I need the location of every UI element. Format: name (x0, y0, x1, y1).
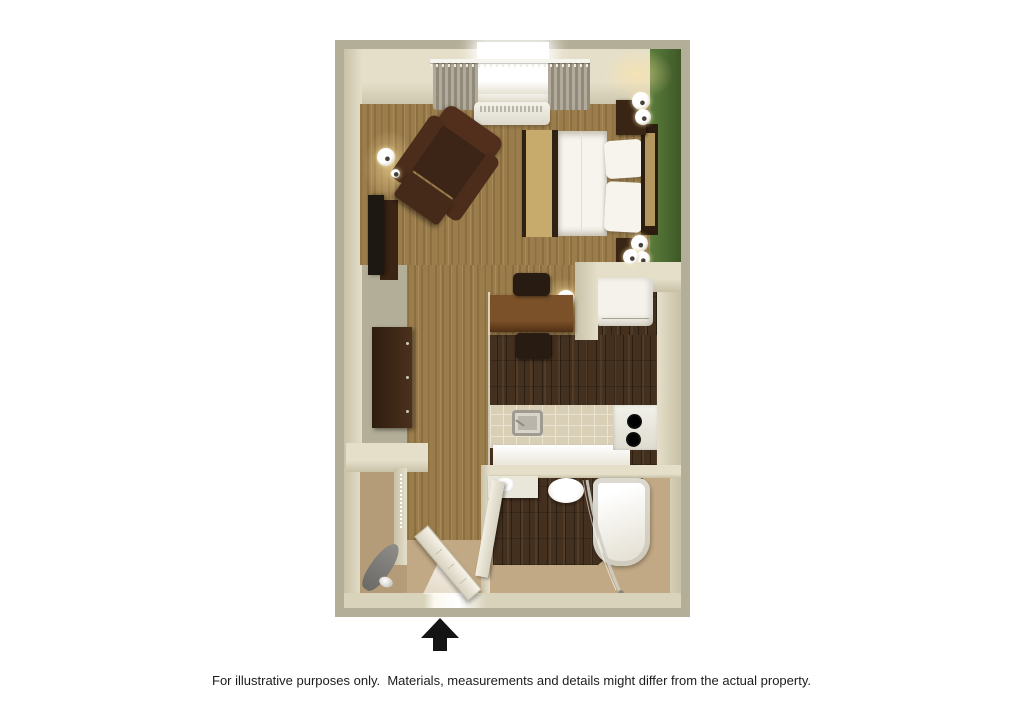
kitchen-wall (575, 262, 598, 340)
chair (515, 333, 551, 359)
closet-shelf (346, 443, 428, 472)
bottom-wall-outer (335, 608, 690, 617)
dresser (372, 327, 412, 428)
refrigerator-handle (602, 318, 649, 319)
entrance-arrow-icon (433, 638, 447, 651)
bed-runner (522, 130, 558, 237)
curtain-rings (430, 64, 590, 67)
bottom-wall (344, 593, 681, 608)
headboard-panel (645, 133, 655, 226)
carpet-floor-corridor (407, 335, 488, 540)
burner (627, 414, 642, 429)
pillow (604, 139, 645, 180)
disclaimer-caption: For illustrative purposes only. Material… (0, 673, 1023, 688)
floor-plan-page: For illustrative purposes only. Material… (0, 0, 1023, 716)
drawer-handle (406, 342, 409, 345)
wall-lamp-icon (623, 249, 639, 265)
floor-plan (335, 40, 690, 617)
ac-vents (480, 106, 544, 112)
table-lamp-icon (632, 92, 650, 110)
drawer-handle (406, 410, 409, 413)
wall-sconce-icon (377, 148, 395, 166)
drawer-handle (406, 376, 409, 379)
chair (513, 273, 550, 296)
entrance-arrow-icon (421, 618, 459, 638)
air-conditioner (474, 102, 550, 125)
kitchen-sink (512, 410, 543, 436)
curtain-right (548, 60, 590, 110)
tv (368, 195, 384, 275)
shower-door-glass (488, 478, 670, 598)
headboard (641, 124, 658, 235)
refrigerator (598, 278, 653, 326)
burner (626, 432, 641, 447)
duvet-seam (581, 133, 582, 234)
hanging-rod (400, 472, 402, 528)
table-lamp-icon (635, 109, 651, 125)
bed-duvet (558, 131, 607, 236)
pillow (604, 181, 645, 233)
kitchen-cabinet-front (493, 445, 630, 467)
wall-sconce-icon (391, 169, 400, 178)
curtain-rod (430, 59, 590, 63)
desk (490, 295, 573, 332)
window (477, 42, 549, 94)
